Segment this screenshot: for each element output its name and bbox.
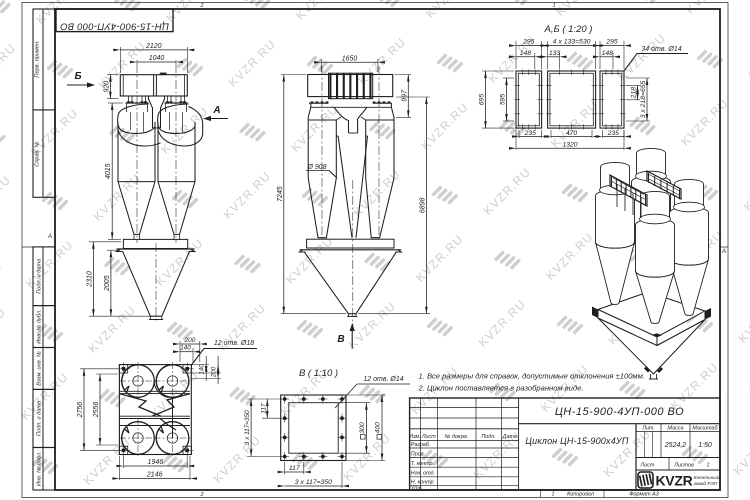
svg-text:3 х 117=350: 3 х 117=350 bbox=[295, 479, 332, 486]
svg-text:А: А bbox=[721, 249, 726, 255]
svg-text:997: 997 bbox=[401, 89, 408, 102]
svg-text:1946: 1946 bbox=[148, 459, 164, 466]
svg-text:Циклон ЦН-15-900х4УП: Циклон ЦН-15-900х4УП bbox=[525, 436, 628, 446]
svg-text:2756: 2756 bbox=[77, 402, 84, 419]
svg-text:920: 920 bbox=[103, 81, 110, 93]
svg-text:12 отв. Ø18: 12 отв. Ø18 bbox=[214, 340, 254, 347]
svg-text:4015: 4015 bbox=[105, 163, 112, 179]
svg-text:В ( 1:10 ): В ( 1:10 ) bbox=[299, 368, 338, 379]
svg-text:1:50: 1:50 bbox=[698, 442, 712, 449]
svg-text:2: 2 bbox=[199, 3, 203, 9]
svg-text:Взам. инв. №: Взам. инв. № bbox=[37, 351, 43, 386]
svg-text:1: 1 bbox=[552, 3, 555, 9]
svg-text:Ø 908: Ø 908 bbox=[306, 164, 326, 171]
svg-text:3 х 218=655: 3 х 218=655 bbox=[640, 80, 647, 118]
svg-text:295: 295 bbox=[605, 39, 618, 46]
svg-text:Лит.: Лит. bbox=[641, 426, 655, 432]
svg-text:2310: 2310 bbox=[86, 271, 93, 288]
svg-text:200: 200 bbox=[211, 366, 218, 378]
svg-text:140: 140 bbox=[180, 345, 191, 352]
svg-text:KVZR: KVZR bbox=[656, 473, 693, 489]
svg-text:295: 295 bbox=[522, 39, 535, 46]
svg-text:Лист: Лист bbox=[640, 463, 655, 469]
svg-text:595: 595 bbox=[500, 94, 507, 106]
svg-text:Нач. отд.: Нач. отд. bbox=[411, 471, 435, 477]
svg-text:2. Циклон поставляется в разоб: 2. Циклон поставляется в разобранном вид… bbox=[418, 384, 584, 393]
svg-text:148: 148 bbox=[602, 50, 614, 57]
svg-text:235: 235 bbox=[524, 130, 537, 137]
svg-text:Формат А3: Формат А3 bbox=[629, 492, 659, 498]
svg-text:ЦН-15-900-4УП-000 ВО: ЦН-15-900-4УП-000 ВО bbox=[555, 406, 684, 418]
svg-text:34 отв. Ø14: 34 отв. Ø14 bbox=[641, 46, 681, 53]
svg-text:Инв. № дубл.: Инв. № дубл. bbox=[37, 309, 43, 343]
svg-text:Котельный: Котельный bbox=[694, 474, 720, 481]
svg-text:148: 148 bbox=[520, 50, 532, 57]
svg-text:470: 470 bbox=[566, 130, 578, 137]
svg-text:Дата: Дата bbox=[502, 434, 517, 440]
svg-text:235: 235 bbox=[607, 130, 620, 137]
svg-text:2120: 2120 bbox=[145, 43, 162, 50]
svg-text:Разраб.: Разраб. bbox=[411, 442, 431, 448]
svg-text:Инв. № подл.: Инв. № подл. bbox=[37, 451, 43, 486]
svg-text:2005: 2005 bbox=[104, 275, 111, 292]
svg-text:695: 695 bbox=[479, 94, 486, 106]
svg-text:2146: 2146 bbox=[146, 472, 163, 479]
svg-text:Перв. примен.: Перв. примен. bbox=[35, 40, 41, 77]
svg-text:6898: 6898 bbox=[419, 197, 426, 213]
svg-text:Масса: Масса bbox=[668, 426, 684, 432]
svg-text:№ докум.: № докум. bbox=[445, 434, 469, 440]
svg-text:Масштаб: Масштаб bbox=[692, 426, 718, 432]
svg-text:Пров.: Пров. bbox=[411, 451, 425, 457]
svg-text:А: А bbox=[212, 105, 220, 116]
svg-text:В: В bbox=[337, 334, 344, 345]
svg-text:ЦН-15-900-4УП-000 ВО: ЦН-15-900-4УП-000 ВО bbox=[60, 21, 169, 32]
svg-text:Лист: Лист bbox=[421, 434, 436, 440]
svg-text:1650: 1650 bbox=[342, 55, 358, 62]
svg-text:218: 218 bbox=[631, 87, 638, 100]
svg-text:А,Б ( 1:20 ): А,Б ( 1:20 ) bbox=[544, 24, 593, 35]
svg-text:2524,2: 2524,2 bbox=[664, 442, 687, 449]
svg-text:400: 400 bbox=[375, 422, 382, 434]
svg-text:Б: Б bbox=[74, 71, 81, 82]
svg-text:7245: 7245 bbox=[277, 186, 284, 202]
svg-text:2: 2 bbox=[199, 492, 203, 498]
svg-text:завод РЭП: завод РЭП bbox=[693, 481, 718, 487]
svg-text:Листов: Листов bbox=[673, 463, 694, 469]
svg-text:1320: 1320 bbox=[562, 141, 577, 148]
svg-text:1: 1 bbox=[551, 492, 554, 498]
svg-text:Подп. и дата: Подп. и дата bbox=[37, 259, 43, 294]
svg-text:12 отв. Ø14: 12 отв. Ø14 bbox=[363, 376, 403, 383]
svg-text:Изм.: Изм. bbox=[409, 434, 421, 440]
svg-text:300: 300 bbox=[359, 422, 366, 434]
svg-text:140: 140 bbox=[199, 364, 206, 375]
svg-text:Подп.: Подп. bbox=[481, 434, 495, 440]
svg-text:2556: 2556 bbox=[93, 402, 100, 419]
svg-text:117: 117 bbox=[260, 403, 267, 414]
svg-text:1040: 1040 bbox=[149, 55, 165, 62]
svg-text:133: 133 bbox=[549, 50, 561, 57]
svg-text:Копировал: Копировал bbox=[567, 492, 594, 498]
svg-text:1. Все размеры для справок, до: 1. Все размеры для справок, допустимые о… bbox=[419, 372, 645, 381]
svg-text:200: 200 bbox=[183, 337, 195, 344]
svg-text:А: А bbox=[47, 234, 52, 240]
svg-text:Утв.: Утв. bbox=[410, 485, 423, 491]
svg-text:117: 117 bbox=[289, 465, 300, 472]
svg-text:4 х 133=530: 4 х 133=530 bbox=[553, 39, 591, 46]
svg-text:1: 1 bbox=[707, 463, 710, 469]
svg-text:Подп. и дата: Подп. и дата bbox=[37, 401, 43, 436]
svg-text:Т. контр.: Т. контр. bbox=[411, 461, 434, 467]
svg-text:Справ. №: Справ. № bbox=[35, 141, 41, 166]
svg-text:3 х 117=350: 3 х 117=350 bbox=[244, 410, 251, 445]
